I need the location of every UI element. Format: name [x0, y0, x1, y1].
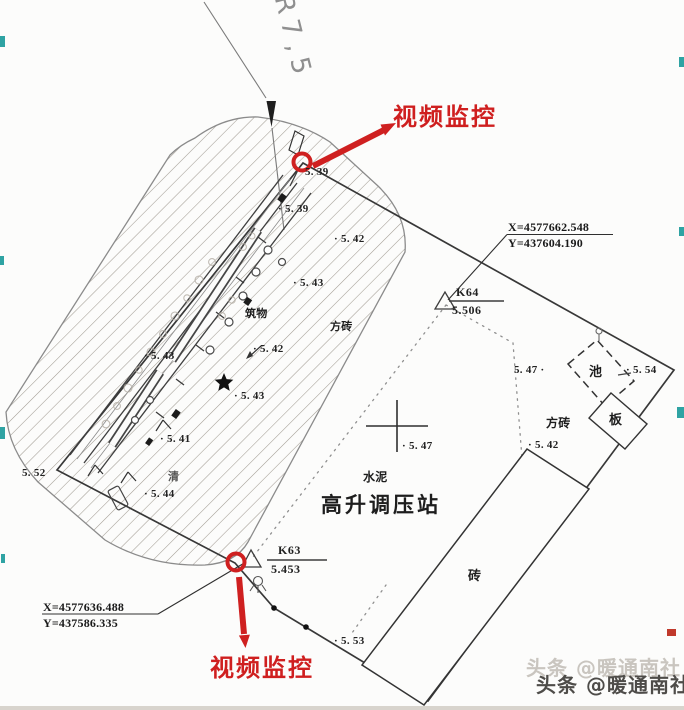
scan-artifact: [0, 427, 5, 439]
spot-elevation: · 5. 42: [528, 439, 559, 451]
structure-label: 筑物: [245, 305, 268, 321]
scan-artifact: [679, 227, 684, 236]
spot-elevation: · 5. 39: [278, 203, 309, 215]
coordinate-y-k64: Y=437604.190: [508, 236, 583, 251]
video-surveillance-label-bottom: 视频监控: [210, 648, 314, 683]
spot-elevation: · 5. 44: [144, 488, 175, 500]
spot-elevation: · 5. 47: [402, 440, 433, 452]
scan-artifact: [677, 407, 684, 418]
spot-elevation: · 5. 43: [144, 350, 175, 362]
tree-symbol: [250, 577, 266, 594]
brick-paving-label-east: 方砖: [546, 414, 571, 431]
control-point-id-k64: K64: [456, 285, 479, 300]
cement-label: 水泥: [363, 468, 388, 485]
coordinate-x-k63: X=4577636.488: [43, 600, 124, 615]
station-name: 高升调压站: [321, 489, 441, 519]
coordinate-x-k64: X=4577662.548: [508, 220, 589, 235]
spot-elevation: · 5. 53: [334, 635, 365, 647]
spot-elevation: · 5. 42: [334, 233, 365, 245]
scan-artifact: [0, 256, 4, 265]
scan-artifact: [679, 57, 684, 67]
spot-elevation: 5. 52: [22, 467, 46, 479]
qing-label: 清: [168, 468, 179, 484]
brick-building-label: 砖: [468, 565, 481, 584]
scan-artifact: [0, 36, 5, 47]
spot-elevation: · 5. 42: [253, 343, 284, 355]
coordinate-y-k63: Y=437586.335: [43, 616, 118, 631]
watermark: 头条 @暖通南社: [536, 669, 684, 698]
spot-elevation: 5. 47 ·: [514, 364, 545, 376]
spot-elevation: · 5. 43: [293, 277, 324, 289]
scan-artifact: [667, 629, 676, 636]
scan-artifact: [1, 554, 5, 563]
control-point-elev-k64: 5.506: [452, 303, 482, 318]
spot-elevation: · 5. 54: [626, 364, 657, 376]
site-plan-drawing: R7,5 视频监控 视频监控 X=4577662.548 Y=437604.19…: [0, 0, 684, 710]
control-point-elev-k63: 5.453: [271, 562, 301, 577]
brick-paving-label-inner: 方砖: [330, 318, 353, 334]
board-label: 板: [609, 409, 622, 428]
spot-elevation: · 5. 41: [160, 433, 191, 445]
control-point-id-k63: K63: [278, 543, 301, 558]
spot-elevation: 5. 39: [305, 166, 329, 178]
pool-label: 池: [589, 361, 602, 380]
scan-bottom-edge: [0, 706, 684, 710]
spot-elevation: · 5. 43: [234, 390, 265, 402]
video-surveillance-label-top: 视频监控: [393, 97, 497, 132]
